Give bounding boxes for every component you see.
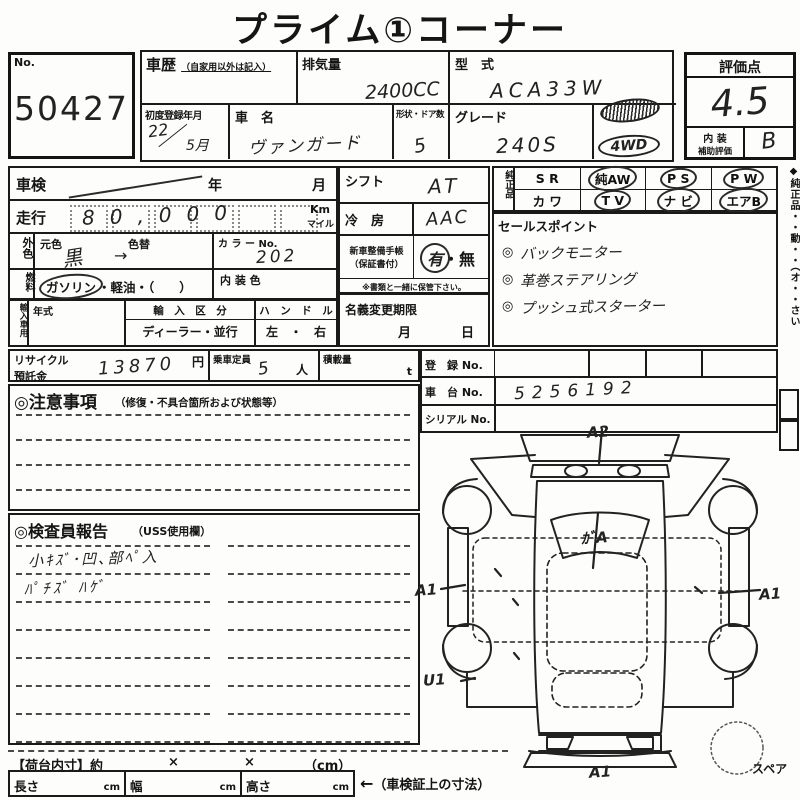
car-diagram-area: A2ｶﾞAA1A1U1A1 スペア [415, 423, 800, 800]
handle-cell: ハ ン ド ル 左 ・ 右 [256, 301, 336, 345]
dims-table: 長さ cm 幅 cm 高さ cm [8, 770, 355, 797]
orig-color-label: 元色 [40, 236, 62, 252]
capacity-cell: 乗車定員 5 人 [210, 351, 320, 380]
handle-value: 左 ・ 右 [256, 320, 336, 340]
bed-x2: × [244, 755, 255, 770]
mileage-digit-box [238, 205, 276, 232]
booklet-note: ※書類と一緒に保管下さい。 [340, 279, 488, 295]
4wd-stamp: 4WD [597, 133, 660, 159]
interior-grade: B [744, 127, 794, 157]
color-side-label: 外色 [10, 234, 35, 268]
length-label: 長さ [14, 776, 39, 795]
cell-divider [701, 351, 703, 376]
load-unit: t [407, 365, 412, 378]
shaken-row: 車検 年 月 [10, 168, 336, 201]
vehicle-block: 車検 年 月 走行 80,000 Km マイル 外色 元色 色替 黒 → カ ラ… [8, 166, 338, 347]
shaken-month-label: 月 [312, 175, 326, 195]
damage-code: ｶﾞA [580, 526, 608, 549]
recycle-row: リサイクル 預託金 13870 円 乗車定員 5 人 積載量 t [8, 349, 420, 382]
shift-label: シフト [345, 171, 488, 190]
cell-divider [645, 351, 647, 376]
stamp-cell: 4WD [594, 105, 671, 159]
cell-divider [588, 351, 590, 376]
edge-box-1 [779, 389, 799, 420]
rating-score: 4.5 [686, 77, 795, 127]
displacement-label: 排気量 [302, 54, 448, 73]
reg-no-row: 登 録 No. [422, 351, 776, 378]
genuine-option: エアB [711, 190, 777, 210]
color-no-cell: カ ラ ー No. 202 [212, 234, 336, 268]
damage-code: A1 [758, 584, 781, 603]
genuine-option: カ ワ [515, 190, 580, 210]
interior-label-line2: 補助評価 [687, 145, 743, 157]
registration-block: 登 録 No. 車 台 No. 5256192 シリアル No. [420, 349, 778, 433]
grade-cell: グレード 240S [450, 105, 594, 159]
ac-value: AAC [425, 207, 470, 231]
chassis-no-row: 車 台 No. 5256192 [422, 378, 776, 406]
recycle-cell: リサイクル 預託金 13870 円 [10, 351, 210, 380]
dashed-line [16, 489, 410, 491]
fuel-options: ・軽油・（ ） [98, 277, 192, 296]
doors-value: 5 [412, 134, 428, 158]
shift-value: AT [427, 173, 460, 198]
damage-codes: A2ｶﾞAA1A1U1A1 [415, 423, 800, 800]
booklet-yes: 有 [427, 246, 443, 270]
import-class-cell: 輸 入 区 分 ディーラー・並行 [126, 301, 256, 345]
sales-bullet-icon: ◎ [502, 299, 513, 314]
page-title: プライム①コーナー [0, 2, 800, 53]
fuel-gasoline: ガソリン [46, 277, 96, 296]
length-unit: cm [104, 782, 120, 793]
car-name-value: ヴァンガード [247, 128, 362, 159]
sales-bullet-icon: ◎ [502, 272, 513, 287]
genuine-option: P W [711, 168, 777, 189]
spare-label: スペア [752, 760, 787, 777]
import-row: 輸入車用 年式 輸 入 区 分 ディーラー・並行 ハ ン ド ル 左 ・ 右 [10, 301, 336, 345]
genuine-side-label: 純正品 [494, 168, 515, 210]
import-class-label: 輸 入 区 分 [126, 301, 254, 320]
inspector-box: ◎検査員報告 （USS使用欄） 小ｷｽﾞ･凹､部ﾍﾟ入 ﾊﾟﾁｽﾞ ﾊｹﾞ [8, 513, 420, 745]
genuine-option: T V [580, 190, 646, 210]
auction-sheet: プライム①コーナー No. 50427 車歴 （自家用以外は記入） 排気量 24… [0, 0, 800, 800]
transfer-month: 月 [398, 322, 411, 341]
genuine-option: S R [515, 168, 580, 189]
grade-value: 240S [496, 132, 560, 158]
damage-code: U1 [422, 670, 446, 690]
grade-label: グレード [455, 107, 592, 126]
height-unit: cm [333, 782, 349, 793]
booklet-no: 無 [459, 250, 475, 269]
genuine-grid: S R純AWP SP W カ ワT Vナ ビエアB [515, 168, 776, 210]
import-side-label: 輸入車用 [10, 301, 29, 345]
color-no-value: 202 [256, 246, 298, 268]
transfer-day: 日 [461, 322, 474, 341]
doors-label: 形状・ドア数 [396, 108, 448, 120]
shift-row: シフト AT [340, 168, 488, 204]
displacement-cell: 排気量 2400CC [298, 52, 450, 105]
interior-rating-label: 内 装 補助評価 [687, 128, 745, 157]
interior-color-label: 内 装 色 [220, 272, 336, 288]
import-class-value: ディーラー・並行 [126, 320, 254, 340]
history-note: （自家用以外は記入） [181, 63, 271, 73]
sales-block: セールスポイント ◎バックモニター◎革巻ステアリング◎プッシュ式スターター [492, 212, 778, 347]
recycle-unit: 円 [192, 353, 204, 370]
bed-dims-row: 【荷台内寸】約 × × （cm） [8, 750, 508, 770]
interior-color-cell: 内 装 色 [212, 270, 336, 298]
dims-note-text: （車検証上の寸法） [373, 778, 490, 793]
cautions-lines [10, 386, 418, 509]
model-code-value: ACA33W [490, 75, 607, 103]
cautions-box: ◎注意事項 （修復・不具合箇所および状態等） [8, 384, 420, 511]
ac-divider [412, 204, 414, 234]
header-grid: 車歴 （自家用以外は記入） 排気量 2400CC 型 式 ACA33W 初度登録… [140, 50, 674, 162]
first-reg-cell: 初度登録年月 22 ／ 5月 [142, 105, 230, 159]
height-cell: 高さ cm [242, 772, 353, 795]
chassis-divider [494, 378, 496, 404]
inspector-writing-2: ﾊﾟﾁｽﾞ ﾊｹﾞ [24, 576, 107, 600]
shaken-label: 車検 [16, 174, 46, 195]
transfer-row: 名義変更期限 月 日 [340, 298, 488, 345]
genuine-option: P S [645, 168, 711, 189]
color-row: 外色 元色 色替 黒 → カ ラ ー No. 202 [10, 234, 336, 270]
width-unit: cm [220, 782, 236, 793]
chassis-no-value: 5256192 [514, 378, 640, 404]
reg-no-label: 登 録 No. [425, 357, 483, 373]
lot-number-box: No. 50427 [8, 52, 135, 159]
model-code-cell: 型 式 ACA33W [450, 52, 676, 105]
edge-note: ◆純正品・・動・・（オ・・さい [783, 166, 800, 388]
load-label: 積載量 [323, 352, 418, 366]
ac-row: 冷 房 AAC [340, 204, 488, 236]
sales-point: ◎バックモニター [494, 239, 776, 266]
capacity-unit: 人 [296, 361, 308, 378]
genuine-block: 純正品 S R純AWP SP W カ ワT Vナ ビエアB [492, 166, 778, 212]
damage-code: A1 [414, 580, 437, 599]
bed-x1: × [168, 755, 179, 770]
history-label: 車歴 [146, 54, 176, 75]
shaken-year-label: 年 [208, 175, 222, 195]
sales-list: ◎バックモニター◎革巻ステアリング◎プッシュ式スターター [494, 239, 776, 320]
mileage-unit-mile: マイル [307, 217, 334, 230]
booklet-label1: 新車整備手帳 [340, 244, 413, 257]
dims-note-arrow-icon: ← [360, 774, 373, 793]
width-cell: 幅 cm [126, 772, 242, 795]
interior-label-line1: 内 装 [687, 130, 743, 145]
lot-number: 50427 [11, 89, 132, 128]
reg-subcells [494, 351, 776, 376]
import-year-cell: 年式 [29, 301, 126, 345]
first-reg-month: 5月 [186, 135, 209, 155]
width-label: 幅 [130, 776, 143, 795]
sales-point: ◎革巻ステアリング [494, 266, 776, 293]
doors-cell: 形状・ドア数 5 [394, 105, 450, 159]
booklet-choice: 有・無 [414, 236, 488, 278]
color-change-label: 色替 [128, 236, 150, 252]
booklet-label2: （保証書付） [340, 257, 413, 270]
orig-color-value: 黒 [60, 241, 84, 273]
sales-point: ◎プッシュ式スターター [494, 293, 776, 320]
mileage-unit-km: Km [310, 203, 330, 216]
dashed-line [16, 464, 410, 466]
car-name-cell: 車 名 ヴァンガード [230, 105, 394, 159]
import-year-label: 年式 [33, 303, 124, 318]
sales-label: セールスポイント [498, 216, 776, 235]
model-code-label: 型 式 [455, 54, 676, 73]
transfer-label: 名義変更期限 [345, 301, 488, 318]
fuel-side-label: 燃料 [10, 270, 35, 298]
dashed-line [16, 439, 410, 441]
dims-note: ←（車検証上の寸法） [360, 774, 490, 793]
genuine-option: 純AW [580, 168, 646, 189]
booklet-label-cell: 新車整備手帳 （保証書付） [340, 236, 414, 278]
mileage-label: 走行 [16, 207, 46, 228]
genuine-option: ナ ビ [645, 190, 711, 210]
mileage-row: 走行 80,000 Km マイル [10, 201, 336, 234]
height-label: 高さ [246, 776, 271, 795]
chassis-no-label: 車 台 No. [425, 384, 483, 400]
interior-rating-row: 内 装 補助評価 B [687, 126, 793, 157]
dashed-line [16, 414, 410, 416]
rating-box: 評価点 4.5 内 装 補助評価 B [684, 52, 796, 160]
length-cell: 長さ cm [10, 772, 126, 795]
fuel-row: 燃料 ガソリン ・軽油・（ ） 内 装 色 [10, 270, 336, 301]
displacement-value: 2400CC [365, 78, 441, 104]
shaken-strike [69, 175, 203, 198]
genuine-row: S R純AWP SP W [515, 168, 776, 190]
lot-number-label: No. [14, 56, 35, 69]
handle-label: ハ ン ド ル [256, 301, 336, 320]
color-arrow: → [114, 246, 127, 265]
middle-block: シフト AT 冷 房 AAC 新車整備手帳 （保証書付） 有・無 ※書類と一緒に… [338, 166, 490, 347]
rating-label: 評価点 [687, 55, 793, 78]
ac-label: 冷 房 [345, 210, 384, 229]
booklet-row: 新車整備手帳 （保証書付） 有・無 [340, 236, 488, 279]
sales-bullet-icon: ◎ [502, 245, 513, 260]
damage-code: A2 [586, 422, 609, 441]
load-cell: 積載量 t [320, 351, 418, 380]
first-reg-slash: ／ [158, 117, 183, 153]
car-name-label: 車 名 [235, 107, 392, 126]
damage-code: A1 [588, 762, 611, 781]
history-cell: 車歴 （自家用以外は記入） [142, 52, 298, 105]
genuine-row: カ ワT Vナ ビエアB [515, 190, 776, 210]
